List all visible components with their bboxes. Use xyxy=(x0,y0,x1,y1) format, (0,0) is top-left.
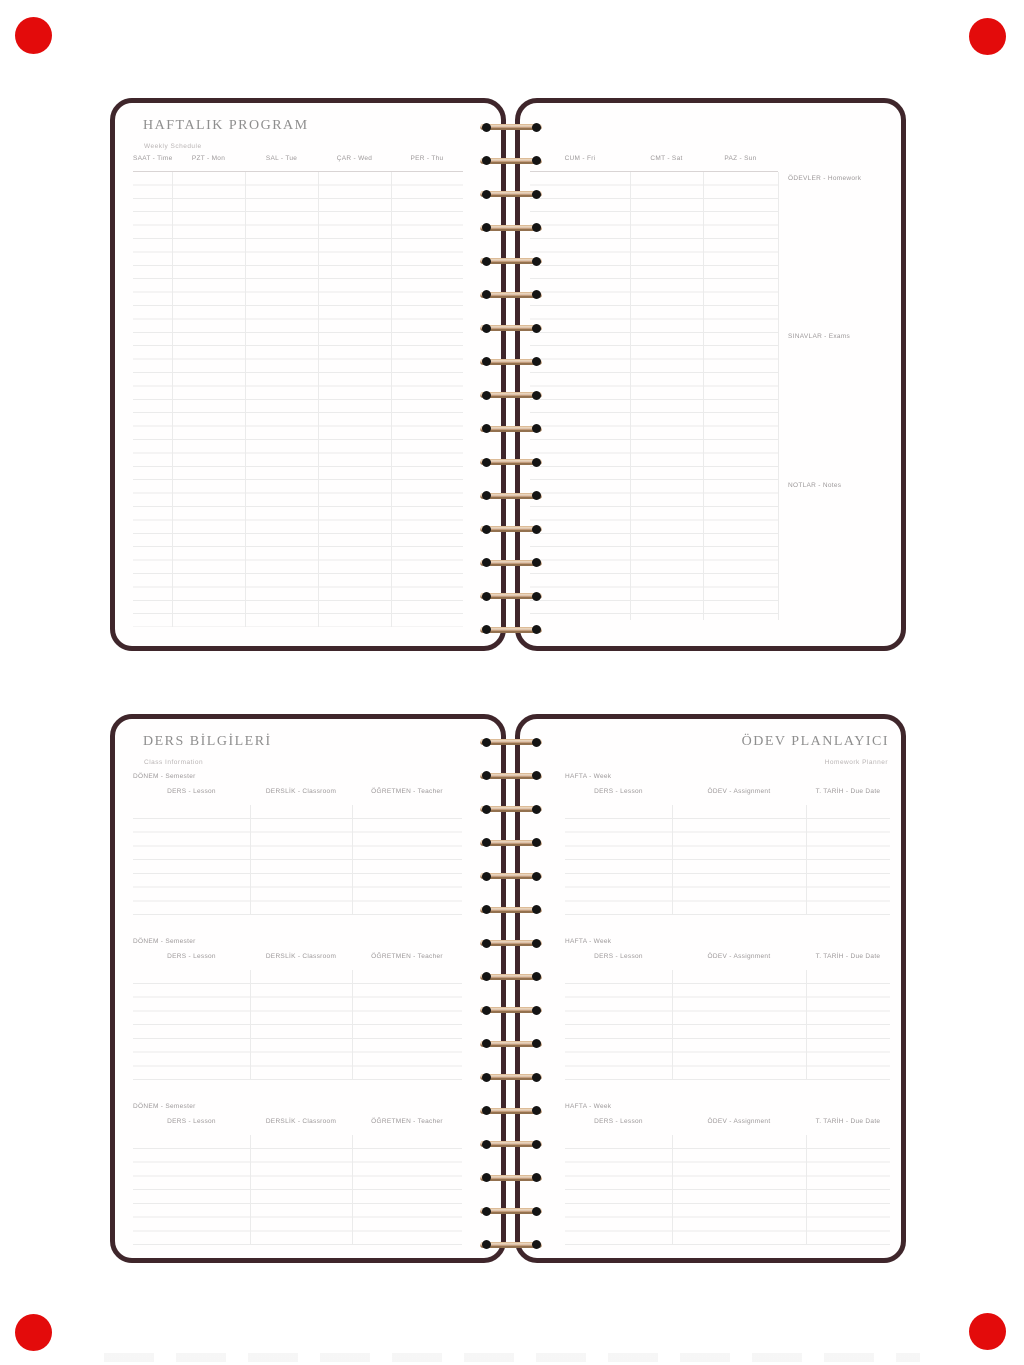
page-title: HAFTALIK PROGRAM xyxy=(143,118,309,134)
binding-hole xyxy=(482,1106,491,1115)
grid-divider xyxy=(352,1135,353,1245)
section-label: DÖNEM - Semester xyxy=(133,938,196,945)
grid-divider xyxy=(352,970,353,1080)
entry-rows xyxy=(133,970,462,1080)
binding-hole xyxy=(482,805,491,814)
binding-hole xyxy=(482,1006,491,1015)
entry-rows xyxy=(565,970,890,1080)
binding-hole xyxy=(482,592,491,601)
col-header-lesson: DERS - Lesson xyxy=(565,788,672,795)
grid-divider xyxy=(672,1135,673,1245)
binding-hole xyxy=(532,592,541,601)
side-section-label-homework: ÖDEVLER - Homework xyxy=(788,175,861,182)
binding-hole xyxy=(482,939,491,948)
col-header-classroom: DERSLİK - Classroom xyxy=(250,1118,352,1125)
binding-hole xyxy=(482,625,491,634)
marker-dot-bottom-left xyxy=(15,1314,52,1351)
col-header-time: SAAT - Time xyxy=(133,155,172,162)
binding-hole xyxy=(532,424,541,433)
grid-divider xyxy=(245,172,246,627)
binding-hole xyxy=(532,290,541,299)
entry-rows xyxy=(133,805,462,915)
col-header-friday: CUM - Fri xyxy=(530,155,630,162)
col-header-saturday: CMT - Sat xyxy=(630,155,703,162)
section-label: HAFTA - Week xyxy=(565,1103,611,1110)
binding-hole xyxy=(482,905,491,914)
binding-hole xyxy=(482,290,491,299)
col-header-lesson: DERS - Lesson xyxy=(133,1118,250,1125)
grid-divider xyxy=(806,970,807,1080)
binding-hole xyxy=(532,738,541,747)
col-header-lesson: DERS - Lesson xyxy=(565,1118,672,1125)
col-header-thursday: PER - Thu xyxy=(391,155,463,162)
binding-hole xyxy=(482,424,491,433)
binding-hole xyxy=(482,738,491,747)
binding-hole xyxy=(532,905,541,914)
notes-column-divider xyxy=(778,172,779,620)
grid-divider xyxy=(250,1135,251,1245)
side-section-label-notes: NOTLAR - Notes xyxy=(788,482,841,489)
grid-divider xyxy=(250,970,251,1080)
binding-hole xyxy=(532,558,541,567)
binding-hole xyxy=(532,391,541,400)
binding-hole xyxy=(482,972,491,981)
binding-hole xyxy=(532,872,541,881)
binding-hole xyxy=(532,1106,541,1115)
product-photo: HAFTALIK PROGRAM Weekly Schedule SAAT - … xyxy=(0,0,1024,1365)
binding-hole xyxy=(532,1173,541,1182)
col-header-teacher: ÖĞRETMEN - Teacher xyxy=(352,788,462,795)
col-header-due-date: T. TARİH - Due Date xyxy=(806,1118,890,1125)
binding-hole xyxy=(482,771,491,780)
grid-divider xyxy=(806,1135,807,1245)
binding-hole xyxy=(532,257,541,266)
grid-divider xyxy=(703,172,704,620)
col-header-classroom: DERSLİK - Classroom xyxy=(250,953,352,960)
binding-hole xyxy=(532,838,541,847)
binding-hole xyxy=(532,1140,541,1149)
col-header-teacher: ÖĞRETMEN - Teacher xyxy=(352,953,462,960)
binding-hole xyxy=(532,771,541,780)
entry-rows xyxy=(565,805,890,915)
col-header-assignment: ÖDEV - Assignment xyxy=(672,1118,806,1125)
col-header-sunday: PAZ - Sun xyxy=(703,155,778,162)
grid-divider xyxy=(672,805,673,915)
schedule-grid xyxy=(530,172,778,620)
binding-hole xyxy=(482,123,491,132)
page-title: DERS BİLGİLERİ xyxy=(143,734,272,750)
binding-hole xyxy=(532,123,541,132)
section-label: DÖNEM - Semester xyxy=(133,1103,196,1110)
side-section-label-exams: SINAVLAR - Exams xyxy=(788,333,850,340)
binding-hole xyxy=(482,872,491,881)
binding-hole xyxy=(482,1039,491,1048)
binding-hole xyxy=(482,558,491,567)
binding-hole xyxy=(532,1039,541,1048)
col-header-lesson: DERS - Lesson xyxy=(133,788,250,795)
page-subtitle: Class Information xyxy=(144,759,203,766)
binding-hole xyxy=(482,223,491,232)
binding-hole xyxy=(532,156,541,165)
binding-hole xyxy=(532,525,541,534)
col-header-monday: PZT - Mon xyxy=(172,155,245,162)
binding-hole xyxy=(482,391,491,400)
binding-hole xyxy=(532,805,541,814)
binding-hole xyxy=(482,525,491,534)
grid-divider xyxy=(672,970,673,1080)
binding-hole xyxy=(532,324,541,333)
binding-hole xyxy=(532,223,541,232)
binding-hole xyxy=(482,156,491,165)
col-header-classroom: DERSLİK - Classroom xyxy=(250,788,352,795)
col-header-teacher: ÖĞRETMEN - Teacher xyxy=(352,1118,462,1125)
page-subtitle: Homework Planner xyxy=(825,759,888,766)
col-header-due-date: T. TARİH - Due Date xyxy=(806,788,890,795)
grid-divider xyxy=(172,172,173,627)
grid-divider xyxy=(391,172,392,627)
photo-artifact-strip xyxy=(104,1353,920,1362)
binding-hole xyxy=(532,458,541,467)
entry-rows xyxy=(565,1135,890,1245)
binding-hole xyxy=(482,1140,491,1149)
marker-dot-bottom-right xyxy=(969,1313,1006,1350)
grid-divider xyxy=(352,805,353,915)
grid-divider xyxy=(806,805,807,915)
grid-divider xyxy=(630,172,631,620)
col-header-due-date: T. TARİH - Due Date xyxy=(806,953,890,960)
col-header-assignment: ÖDEV - Assignment xyxy=(672,953,806,960)
binding-hole xyxy=(532,1006,541,1015)
weekly-right-page: CUM - Fri CMT - Sat PAZ - Sun ÖDEVLER - … xyxy=(515,98,906,651)
binding-hole xyxy=(482,1207,491,1216)
binding-hole xyxy=(532,491,541,500)
binding-hole xyxy=(532,972,541,981)
grid-divider xyxy=(250,805,251,915)
grid-divider xyxy=(318,172,319,627)
schedule-grid xyxy=(133,172,463,627)
lesson-info-page: DERS BİLGİLERİ Class Information DÖNEM -… xyxy=(110,714,506,1263)
entry-rows xyxy=(133,1135,462,1245)
binding-hole xyxy=(482,190,491,199)
section-label: HAFTA - Week xyxy=(565,773,611,780)
binding-hole xyxy=(482,257,491,266)
col-header-assignment: ÖDEV - Assignment xyxy=(672,788,806,795)
binding-hole xyxy=(532,1207,541,1216)
binding-hole xyxy=(482,1173,491,1182)
weekly-left-page: HAFTALIK PROGRAM Weekly Schedule SAAT - … xyxy=(110,98,506,651)
binding-hole xyxy=(482,838,491,847)
section-label: HAFTA - Week xyxy=(565,938,611,945)
binding-hole xyxy=(532,625,541,634)
homework-planner-page: ÖDEV PLANLAYICI Homework Planner HAFTA -… xyxy=(515,714,906,1263)
binding-hole xyxy=(482,324,491,333)
col-header-tuesday: SAL - Tue xyxy=(245,155,318,162)
binding-hole xyxy=(482,1073,491,1082)
binding-hole xyxy=(532,357,541,366)
binding-hole xyxy=(482,458,491,467)
binding-hole xyxy=(482,491,491,500)
marker-dot-top-left xyxy=(15,17,52,54)
page-title: ÖDEV PLANLAYICI xyxy=(742,734,889,750)
section-label: DÖNEM - Semester xyxy=(133,773,196,780)
binding-hole xyxy=(532,1240,541,1249)
binding-hole xyxy=(482,357,491,366)
page-subtitle: Weekly Schedule xyxy=(144,143,202,150)
binding-hole xyxy=(482,1240,491,1249)
marker-dot-top-right xyxy=(969,18,1006,55)
binding-hole xyxy=(532,1073,541,1082)
col-header-lesson: DERS - Lesson xyxy=(565,953,672,960)
binding-hole xyxy=(532,190,541,199)
col-header-wednesday: ÇAR - Wed xyxy=(318,155,391,162)
col-header-lesson: DERS - Lesson xyxy=(133,953,250,960)
binding-hole xyxy=(532,939,541,948)
